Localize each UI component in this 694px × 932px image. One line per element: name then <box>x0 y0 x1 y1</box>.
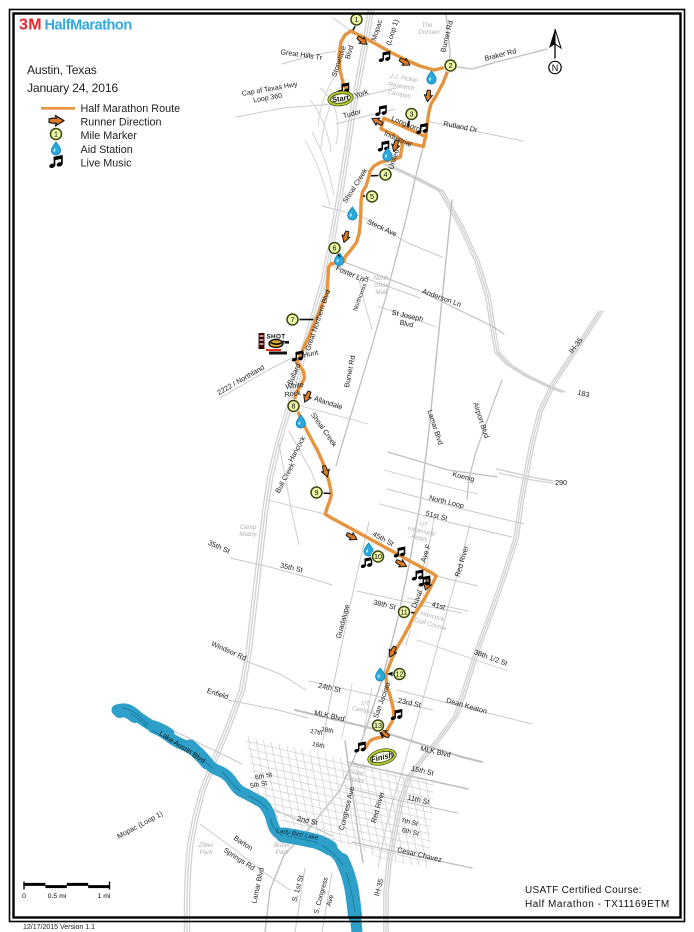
svg-text:Zilker: Zilker <box>197 842 214 849</box>
svg-text:Butler: Butler <box>274 842 291 849</box>
svg-text:Aid Station: Aid Station <box>81 144 133 156</box>
svg-text:Half Marathon - TX11169ETM: Half Marathon - TX11169ETM <box>525 899 670 910</box>
svg-text:Mall: Mall <box>375 289 387 296</box>
svg-text:10: 10 <box>374 552 382 561</box>
svg-text:The: The <box>422 22 433 29</box>
svg-text:Live Music: Live Music <box>81 157 133 169</box>
svg-text:11: 11 <box>400 608 407 617</box>
svg-text:0: 0 <box>22 893 26 900</box>
svg-text:Runner Direction: Runner Direction <box>81 117 162 129</box>
svg-text:Camp: Camp <box>240 524 257 531</box>
svg-text:3: 3 <box>410 110 414 119</box>
svg-text:290: 290 <box>555 478 567 487</box>
svg-text:1 mi: 1 mi <box>98 893 111 900</box>
svg-text:3M: 3M <box>19 17 42 34</box>
svg-text:1: 1 <box>54 130 58 139</box>
svg-text:0.5 mi: 0.5 mi <box>48 893 67 900</box>
svg-text:January 24, 2016: January 24, 2016 <box>27 81 118 95</box>
svg-text:Domain: Domain <box>418 29 440 36</box>
svg-text:6: 6 <box>333 244 337 253</box>
svg-text:8: 8 <box>292 402 296 411</box>
svg-text:5: 5 <box>370 192 374 201</box>
svg-text:13: 13 <box>374 721 382 730</box>
svg-text:Mile Marker: Mile Marker <box>81 130 138 142</box>
svg-text:7: 7 <box>291 315 295 324</box>
svg-text:4: 4 <box>384 170 388 179</box>
svg-text:Half Marathon Route: Half Marathon Route <box>81 103 181 115</box>
svg-text:Park: Park <box>200 849 214 856</box>
svg-text:cross: cross <box>374 282 389 289</box>
svg-text:2: 2 <box>449 61 453 70</box>
svg-text:Park: Park <box>276 849 290 856</box>
svg-text:12: 12 <box>396 670 404 679</box>
svg-text:12/17/2015 Version 1.1: 12/17/2015 Version 1.1 <box>23 924 95 931</box>
svg-text:Austin, Texas: Austin, Texas <box>27 63 97 77</box>
svg-text:N: N <box>552 63 559 73</box>
svg-text:9: 9 <box>315 488 319 497</box>
svg-text:North: North <box>373 275 389 282</box>
svg-text:1: 1 <box>355 15 359 24</box>
svg-text:USATF Certified Course:: USATF Certified Course: <box>525 885 642 896</box>
svg-text:Mabry: Mabry <box>239 531 257 538</box>
svg-text:HalfMarathon: HalfMarathon <box>45 18 133 34</box>
